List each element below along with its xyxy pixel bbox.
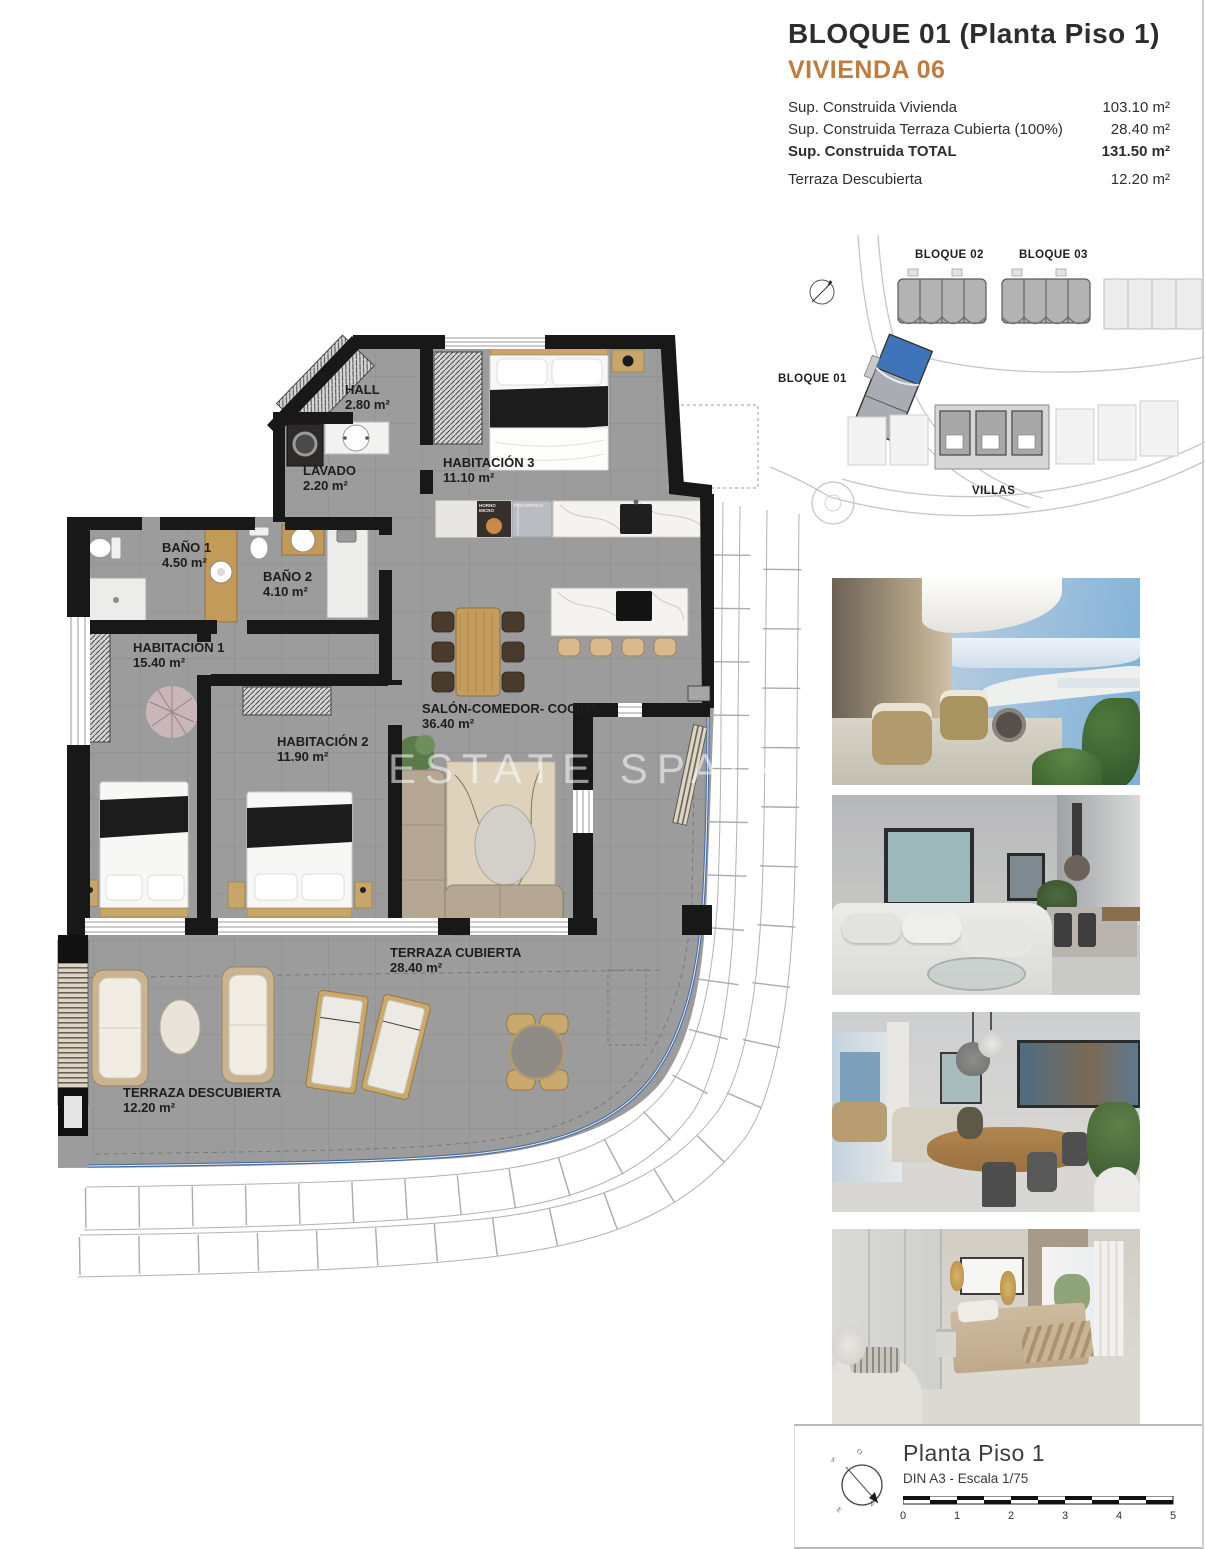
scale-tick-4: 4: [1116, 1510, 1122, 1522]
area-value: 131.50 m²: [1102, 143, 1170, 160]
roundabout: [812, 482, 854, 524]
area-value: 12.20 m²: [1111, 171, 1170, 188]
dining-set: [432, 608, 524, 696]
page-border: [1202, 0, 1204, 1549]
bed-habitacion2: [228, 792, 372, 917]
scale-tick-3: 3: [1062, 1510, 1068, 1522]
room-label-bano1: BAÑO 14.50 m²: [162, 541, 211, 571]
photo-dining-room: [832, 1012, 1140, 1212]
room-label-lavado: LAVADO2.20 m²: [303, 464, 356, 494]
photo-bedroom: [832, 1229, 1140, 1429]
oven-label: HORNO MICRO: [479, 504, 509, 513]
scale-tick-2: 2: [1008, 1510, 1014, 1522]
site-map: BLOQUE 02 BLOQUE 03 BLOQUE 01 VILLAS: [770, 235, 1205, 525]
area-value: 28.40 m²: [1111, 121, 1170, 138]
map-building-bloque03: [1002, 269, 1090, 324]
map-label-villas: VILLAS: [972, 485, 1015, 497]
fridge-label: FRIGORIFICO: [514, 504, 544, 509]
watermark: ESTATE SPAIN -: [388, 745, 831, 793]
wardrobe-habitacion2: [243, 687, 331, 715]
scale-tick-1: 1: [954, 1510, 960, 1522]
area-label: Sup. Construida TOTAL: [788, 143, 957, 160]
floor-plan: HORNO MICRO FRIGORIFICO ESTATE SPAIN -: [0, 330, 805, 1290]
scale-tick-5: 5: [1170, 1510, 1176, 1522]
ac-unit: [688, 686, 710, 701]
page-title: BLOQUE 01 (Planta Piso 1): [788, 18, 1188, 50]
area-row-total: Sup. Construida TOTAL 131.50 m²: [788, 143, 1170, 160]
kitchen-counter: [435, 500, 712, 539]
room-label-bano2: BAÑO 24.10 m²: [263, 570, 312, 600]
room-label-salon: SALÓN-COMEDOR- COCINA36.40 m²: [422, 702, 599, 732]
map-label-bloque03: BLOQUE 03: [1019, 249, 1088, 261]
map-label-bloque02: BLOQUE 02: [915, 249, 984, 261]
photo-living-room: [832, 795, 1140, 995]
footer-title-block: O S E N Planta Piso 1 DIN A3 - Escala 1/…: [794, 1424, 1204, 1549]
room-label-terraza-cubierta: TERRAZA CUBIERTA28.40 m²: [390, 946, 521, 976]
map-building-bloque02: [898, 269, 986, 324]
wardrobe-habitacion3: [434, 352, 482, 444]
scale-tick-0: 0: [900, 1510, 906, 1522]
decor-habitacion1: [146, 686, 198, 738]
room-label-habitacion2: HABITACIÓN 211.90 m²: [277, 735, 368, 765]
map-compass-icon: [810, 280, 834, 304]
area-label: Terraza Descubierta: [788, 171, 922, 188]
area-value: 103.10 m²: [1102, 99, 1170, 116]
area-row: Sup. Construida Terraza Cubierta (100%) …: [788, 121, 1170, 138]
area-row: Terraza Descubierta 12.20 m²: [788, 171, 1170, 188]
area-label: Sup. Construida Vivienda: [788, 99, 957, 116]
plan-title: Planta Piso 1: [903, 1440, 1045, 1467]
room-label-habitacion3: HABITACIÓN 311.10 m²: [443, 456, 534, 486]
map-villas: [935, 405, 1049, 469]
unit-subtitle: VIVIENDA 06: [788, 56, 1188, 85]
room-label-terraza-descubierta: TERRAZA DESCUBIERTA12.20 m²: [123, 1086, 281, 1116]
area-label: Sup. Construida Terraza Cubierta (100%): [788, 121, 1063, 138]
area-row: Sup. Construida Vivienda 103.10 m²: [788, 99, 1170, 116]
scale-note: DIN A3 - Escala 1/75: [903, 1471, 1045, 1486]
photo-terrace: [832, 578, 1140, 785]
title-block: BLOQUE 01 (Planta Piso 1) VIVIENDA 06 Su…: [788, 18, 1188, 188]
scale-bar: [903, 1496, 1175, 1506]
room-label-hall: HALL2.80 m²: [345, 383, 390, 413]
floor-plan-drawing: [0, 330, 805, 1290]
room-label-habitacion1: HABITACIÓN 115.40 m²: [133, 641, 224, 671]
